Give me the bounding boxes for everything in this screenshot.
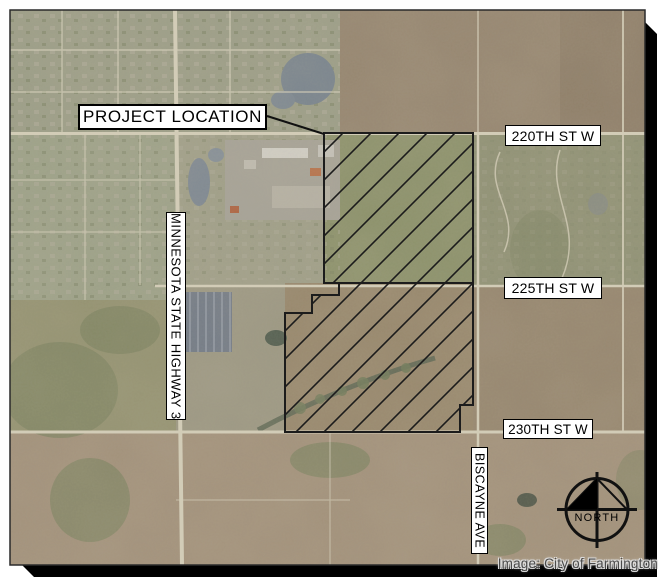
street-label-225th: 225TH ST W: [504, 277, 602, 299]
north-label: NORTH: [567, 512, 627, 524]
map-credit: Image: City of Farmington: [0, 556, 658, 571]
street-label-220th: 220TH ST W: [505, 125, 601, 146]
figure-page: PROJECT LOCATION 220TH ST W 225TH ST W 2…: [0, 0, 660, 578]
highway-3-label: MINNESOTA STATE HIGHWAY 3: [166, 212, 186, 420]
project-location-label: PROJECT LOCATION: [78, 104, 267, 130]
biscayne-ave-label: BISCAYNE AVE: [471, 447, 488, 554]
project-boundary-south-parcel: [285, 283, 473, 432]
street-label-230th: 230TH ST W: [503, 419, 593, 439]
project-boundary-north-parcel: [324, 133, 473, 283]
